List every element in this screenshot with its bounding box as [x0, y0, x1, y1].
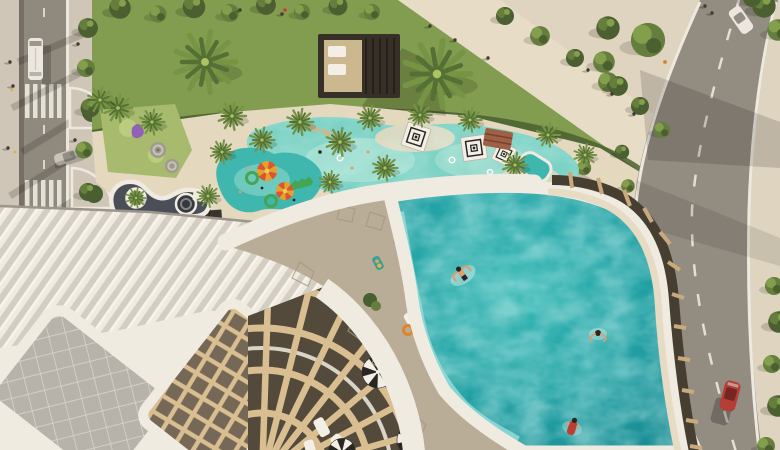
aerial-screenshot: [0, 0, 780, 450]
sunlight-overlay: [0, 0, 780, 450]
aerial-render: [0, 0, 780, 450]
